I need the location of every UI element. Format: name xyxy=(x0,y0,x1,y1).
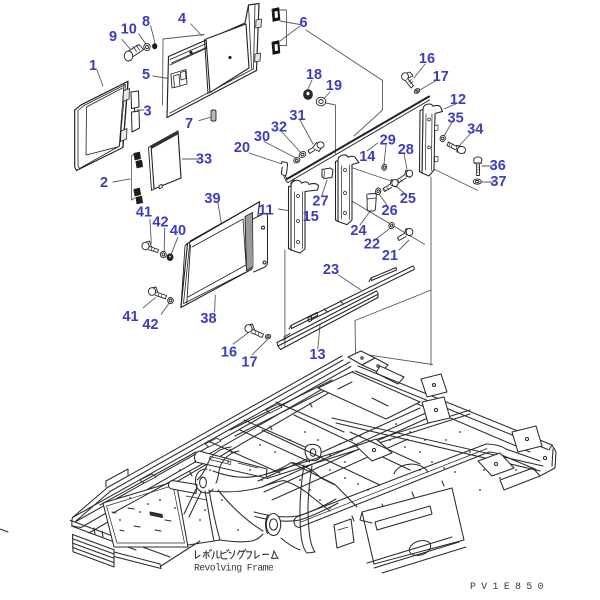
svg-text:8: 8 xyxy=(142,14,150,30)
svg-text:37: 37 xyxy=(490,174,506,190)
svg-text:27: 27 xyxy=(312,194,328,210)
svg-text:30: 30 xyxy=(254,129,270,145)
svg-text:41: 41 xyxy=(136,205,152,221)
svg-text:18: 18 xyxy=(306,67,322,83)
svg-text:2: 2 xyxy=(100,175,108,191)
svg-text:21: 21 xyxy=(382,248,398,264)
svg-text:16: 16 xyxy=(419,51,435,67)
svg-text:13: 13 xyxy=(309,347,325,363)
svg-text:41: 41 xyxy=(122,309,138,325)
svg-text:17: 17 xyxy=(241,355,257,371)
svg-text:38: 38 xyxy=(200,311,216,327)
svg-text:12: 12 xyxy=(450,92,466,108)
svg-text:6: 6 xyxy=(299,15,307,31)
svg-text:34: 34 xyxy=(467,122,483,138)
svg-text:Revolving Frame: Revolving Frame xyxy=(194,563,274,574)
svg-text:33: 33 xyxy=(196,152,212,168)
svg-text:23: 23 xyxy=(323,262,339,278)
svg-text:11: 11 xyxy=(258,203,273,219)
svg-text:3: 3 xyxy=(143,104,151,120)
svg-text:15: 15 xyxy=(303,209,319,225)
svg-text:9: 9 xyxy=(109,29,117,45)
svg-text:19: 19 xyxy=(326,78,342,94)
svg-text:16: 16 xyxy=(221,345,237,361)
svg-text:1: 1 xyxy=(89,58,97,74)
svg-text:32: 32 xyxy=(271,120,287,136)
svg-text:5: 5 xyxy=(142,67,150,83)
svg-text:4: 4 xyxy=(178,11,186,27)
svg-text:35: 35 xyxy=(448,110,464,126)
svg-text:36: 36 xyxy=(490,158,506,174)
svg-text:40: 40 xyxy=(170,223,186,239)
svg-text:7: 7 xyxy=(185,116,193,132)
svg-text:PV1E850: PV1E850 xyxy=(470,581,549,592)
svg-text:10: 10 xyxy=(121,22,137,38)
svg-text:28: 28 xyxy=(398,142,414,158)
svg-text:42: 42 xyxy=(142,317,158,333)
svg-text:25: 25 xyxy=(400,191,416,207)
svg-text:42: 42 xyxy=(152,215,168,231)
svg-text:17: 17 xyxy=(433,69,449,85)
svg-text:22: 22 xyxy=(364,237,380,253)
svg-text:14: 14 xyxy=(359,149,375,165)
svg-text:26: 26 xyxy=(382,203,398,219)
svg-text:29: 29 xyxy=(380,133,396,149)
svg-text:39: 39 xyxy=(204,191,220,207)
svg-text:20: 20 xyxy=(234,140,250,156)
svg-text:31: 31 xyxy=(289,108,305,124)
